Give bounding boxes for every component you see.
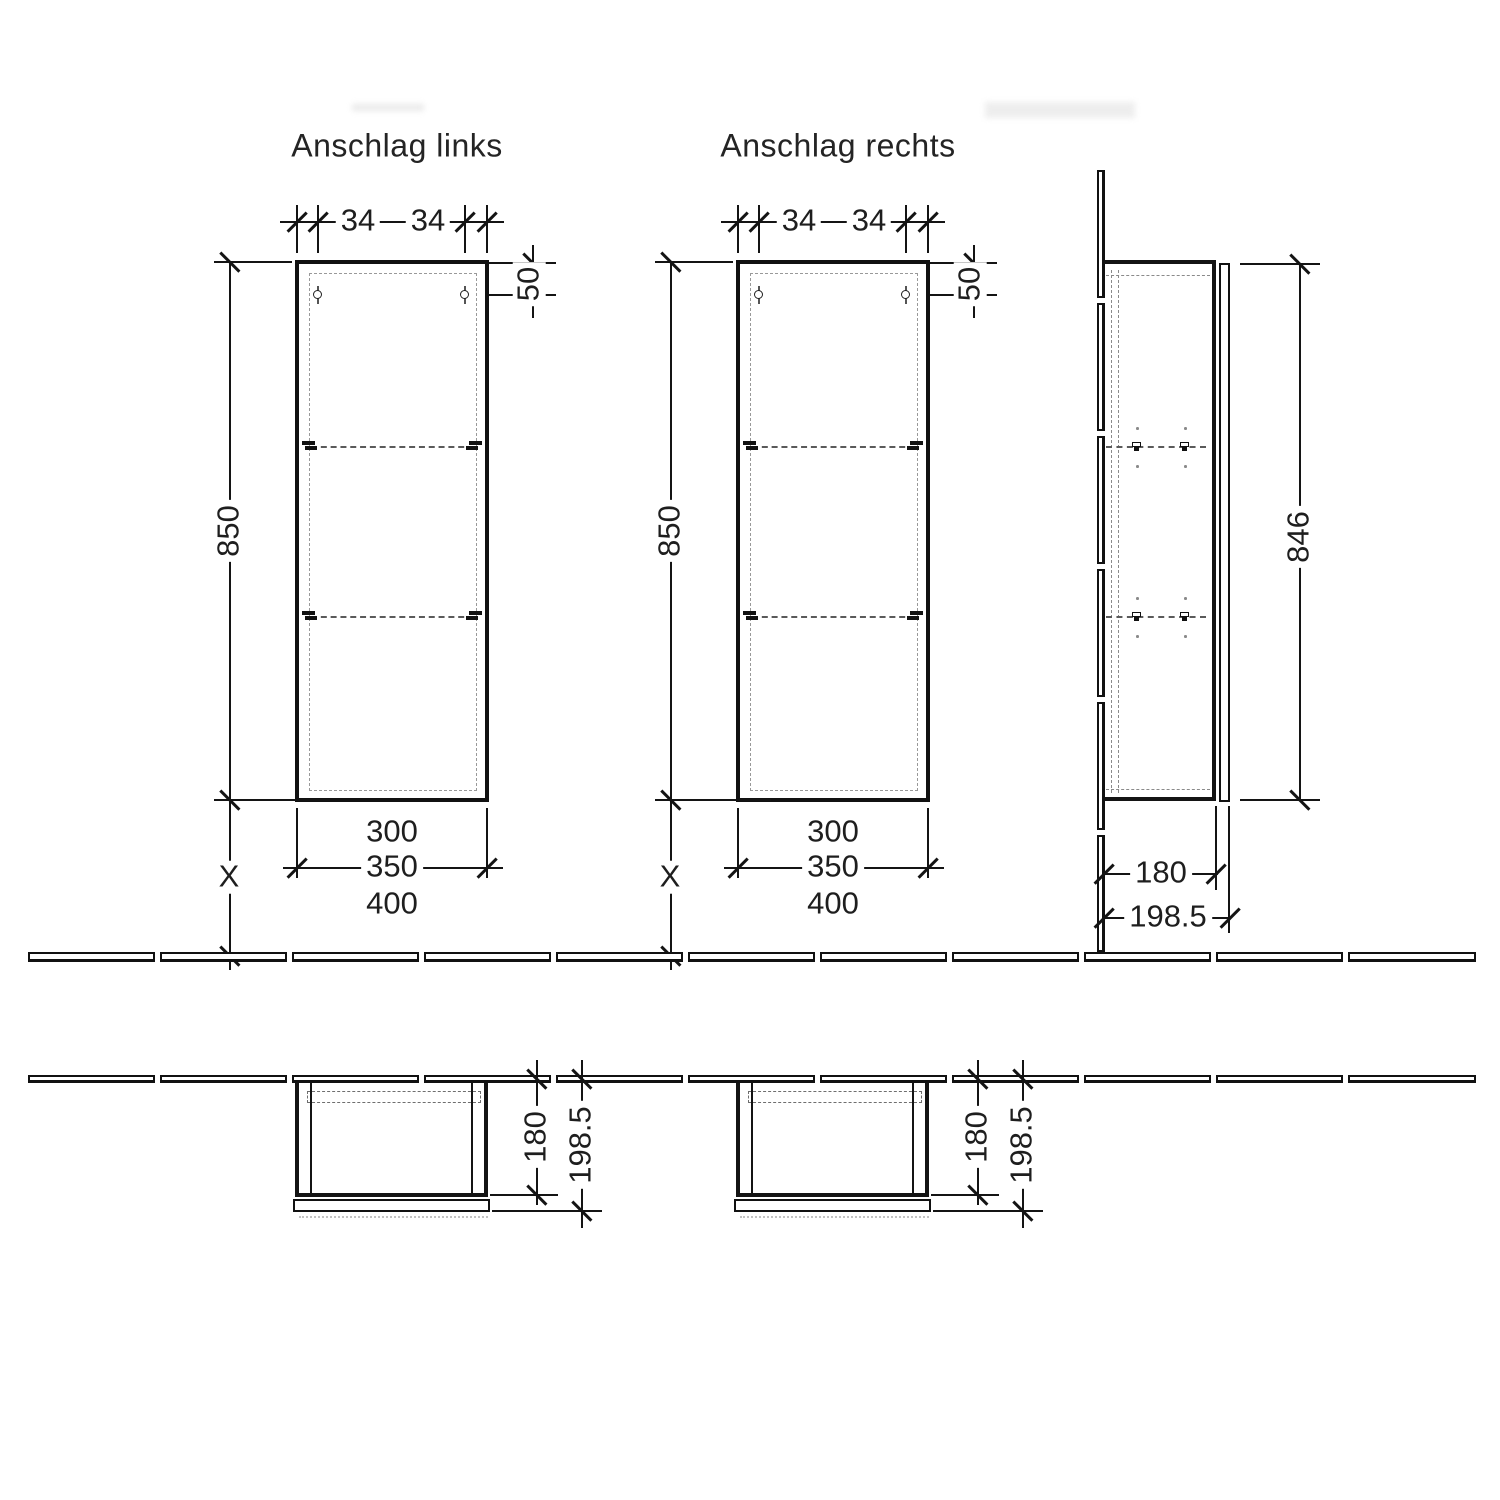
mounting-hole <box>901 290 910 299</box>
side-cabinet-bottom <box>1104 797 1216 801</box>
wall-plan-segment <box>160 1075 287 1083</box>
print-artifact <box>352 104 424 111</box>
floor-line-segment <box>160 952 287 962</box>
pin-hole-dot <box>1184 465 1187 468</box>
extension-line <box>486 205 488 253</box>
shelf-bracket <box>305 616 317 620</box>
extension-line <box>490 1194 558 1196</box>
dim-label-198-5: 198.5 <box>565 1101 598 1189</box>
dim-label-x: X <box>214 861 245 894</box>
hidden-edge-dashed <box>1106 275 1210 276</box>
shelf-bracket <box>466 446 478 450</box>
extension-line <box>931 1194 999 1196</box>
shelf-bracket <box>469 611 482 615</box>
pin-hole-dot <box>1184 427 1187 430</box>
dim-label-180: 180 <box>520 1106 553 1168</box>
plan-side-wall <box>295 1083 299 1197</box>
floor-line-segment <box>556 952 683 962</box>
plan-side-wall <box>925 1083 929 1197</box>
wall-plan-segment <box>820 1075 947 1083</box>
shelf-bracket <box>743 441 756 445</box>
shelf-bracket <box>746 446 758 450</box>
shelf-bracket <box>469 441 482 445</box>
shelf-bracket <box>907 616 919 620</box>
pin-hole-dot <box>1184 635 1187 638</box>
dim-label-350: 350 <box>361 851 423 884</box>
extension-line <box>905 205 907 253</box>
plan-cabinet-front-edge <box>295 1193 488 1197</box>
shelf-dashed-line <box>752 446 915 448</box>
floor-line-segment <box>1084 952 1211 962</box>
plan-side-wall <box>736 1083 740 1197</box>
wall-plan-segment <box>556 1075 683 1083</box>
floor-line-segment <box>1216 952 1343 962</box>
wall-line-segment <box>1097 569 1105 697</box>
dim-label-x: X <box>655 861 686 894</box>
pin-hole-dot <box>1136 427 1139 430</box>
shelf-bracket <box>743 611 756 615</box>
wall-plan-segment <box>1084 1075 1211 1083</box>
hidden-edge-dashed <box>1106 789 1210 790</box>
shelf-bracket <box>746 616 758 620</box>
extension-line <box>1228 806 1230 933</box>
dim-label-400: 400 <box>802 888 864 921</box>
mounting-hole <box>754 290 763 299</box>
plan-cabinet-front-edge <box>736 1193 929 1197</box>
dim-label-180: 180 <box>1130 857 1192 890</box>
mounting-hole <box>313 290 322 299</box>
dim-label-50: 50 <box>513 262 546 306</box>
dim-label-850: 850 <box>213 500 246 562</box>
wall-line-segment <box>1097 436 1105 564</box>
shelf-dashed-line <box>311 616 474 618</box>
wall-plan-segment <box>952 1075 1079 1083</box>
floor-line-segment <box>952 952 1079 962</box>
wall-plan-segment <box>1216 1075 1343 1083</box>
dim-label-198-5: 198.5 <box>1124 901 1212 934</box>
wall-line-segment <box>1097 702 1105 830</box>
pin-hole-dot <box>1184 597 1187 600</box>
door-swing-faint-line <box>299 1216 488 1218</box>
shelf-dashed-line <box>311 446 474 448</box>
wall-line-segment <box>1097 835 1105 952</box>
shelf-dashed-line <box>1106 446 1206 448</box>
door-panel-plan <box>293 1199 490 1212</box>
mounting-hole <box>460 290 469 299</box>
extension-line <box>655 261 733 263</box>
extension-line <box>758 205 760 253</box>
dim-label-300: 300 <box>802 816 864 849</box>
floor-line-segment <box>688 952 815 962</box>
extension-line <box>1240 799 1320 801</box>
shelf-dashed-line <box>752 616 915 618</box>
back-panel-dashed <box>1118 270 1119 793</box>
dim-label-350: 350 <box>802 851 864 884</box>
floor-line-segment <box>292 952 419 962</box>
shelf-bracket <box>302 611 315 615</box>
extension-line <box>214 261 292 263</box>
shelf-pin <box>1134 616 1139 621</box>
dim-label-300: 300 <box>361 816 423 849</box>
dim-label-850: 850 <box>654 500 687 562</box>
plan-back-panel-dashed <box>748 1091 922 1103</box>
floor-line-segment <box>28 952 155 962</box>
shelf-bracket <box>910 611 923 615</box>
shelf-dashed-line <box>1106 616 1206 618</box>
shelf-bracket <box>305 446 317 450</box>
pin-hole-dot <box>1136 597 1139 600</box>
shelf-bracket <box>910 441 923 445</box>
floor-line-segment <box>820 952 947 962</box>
wall-plan-segment <box>28 1075 155 1083</box>
pin-hole-dot <box>1136 465 1139 468</box>
print-artifact <box>985 102 1135 118</box>
dim-label-34-right: 34 <box>406 205 450 238</box>
wall-plan-segment <box>1348 1075 1476 1083</box>
title-anschlag-rechts: Anschlag rechts <box>720 128 955 165</box>
wall-line-segment <box>1097 303 1105 431</box>
extension-line <box>296 205 298 253</box>
extension-line <box>737 205 739 253</box>
side-cabinet-front <box>1212 260 1216 801</box>
back-panel-dashed <box>1111 270 1112 793</box>
door-panel-plan <box>734 1199 931 1212</box>
pin-hole-dot <box>1136 635 1139 638</box>
dim-label-34-right: 34 <box>847 205 891 238</box>
extension-line <box>1215 806 1217 890</box>
dim-label-50: 50 <box>954 262 987 306</box>
plan-side-wall <box>484 1083 488 1197</box>
wall-line-segment <box>1097 170 1105 298</box>
extension-line <box>464 205 466 253</box>
floor-line-segment <box>1348 952 1476 962</box>
shelf-bracket <box>907 446 919 450</box>
wall-plan-segment <box>292 1075 419 1083</box>
door-swing-faint-line <box>740 1216 929 1218</box>
dim-label-198-5: 198.5 <box>1006 1101 1039 1189</box>
dim-label-34-left: 34 <box>777 205 821 238</box>
extension-line <box>1240 263 1320 265</box>
dim-label-34-left: 34 <box>336 205 380 238</box>
title-anschlag-links: Anschlag links <box>291 128 503 165</box>
extension-line <box>317 205 319 253</box>
front-left-back-panel-dashed <box>309 273 477 791</box>
wall-plan-segment <box>688 1075 815 1083</box>
dim-label-180: 180 <box>961 1106 994 1168</box>
shelf-bracket <box>466 616 478 620</box>
plan-back-panel-dashed <box>307 1091 481 1103</box>
technical-drawing-canvas: Anschlag links Anschlag rechts 34 34 50 … <box>0 0 1500 1500</box>
shelf-bracket <box>302 441 315 445</box>
extension-line <box>927 205 929 253</box>
shelf-pin <box>1182 446 1187 451</box>
dim-label-400: 400 <box>361 888 423 921</box>
dim-label-846: 846 <box>1283 506 1316 568</box>
shelf-pin <box>1182 616 1187 621</box>
floor-line-segment <box>424 952 551 962</box>
door-panel-side <box>1219 263 1230 802</box>
front-right-back-panel-dashed <box>750 273 918 791</box>
side-cabinet-top <box>1104 260 1216 264</box>
shelf-pin <box>1134 446 1139 451</box>
